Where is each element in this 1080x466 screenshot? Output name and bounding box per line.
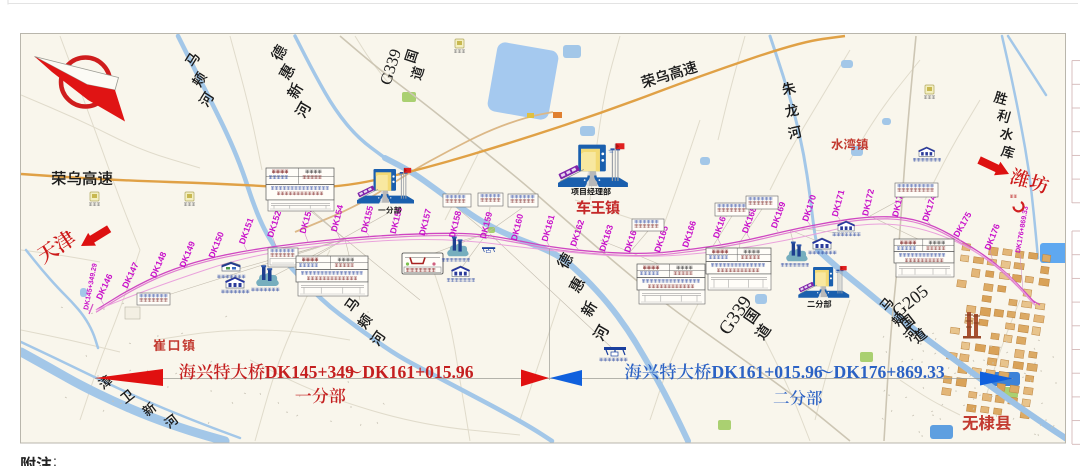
svg-text::: : [53,453,57,466]
svg-text:DK176+869.33: DK176+869.33 [834,362,945,382]
svg-text:DK161+015.96: DK161+015.96 [362,362,473,382]
svg-text:DK145+349: DK145+349 [265,362,354,382]
svg-text:DK161+015.96: DK161+015.96 [712,362,823,382]
